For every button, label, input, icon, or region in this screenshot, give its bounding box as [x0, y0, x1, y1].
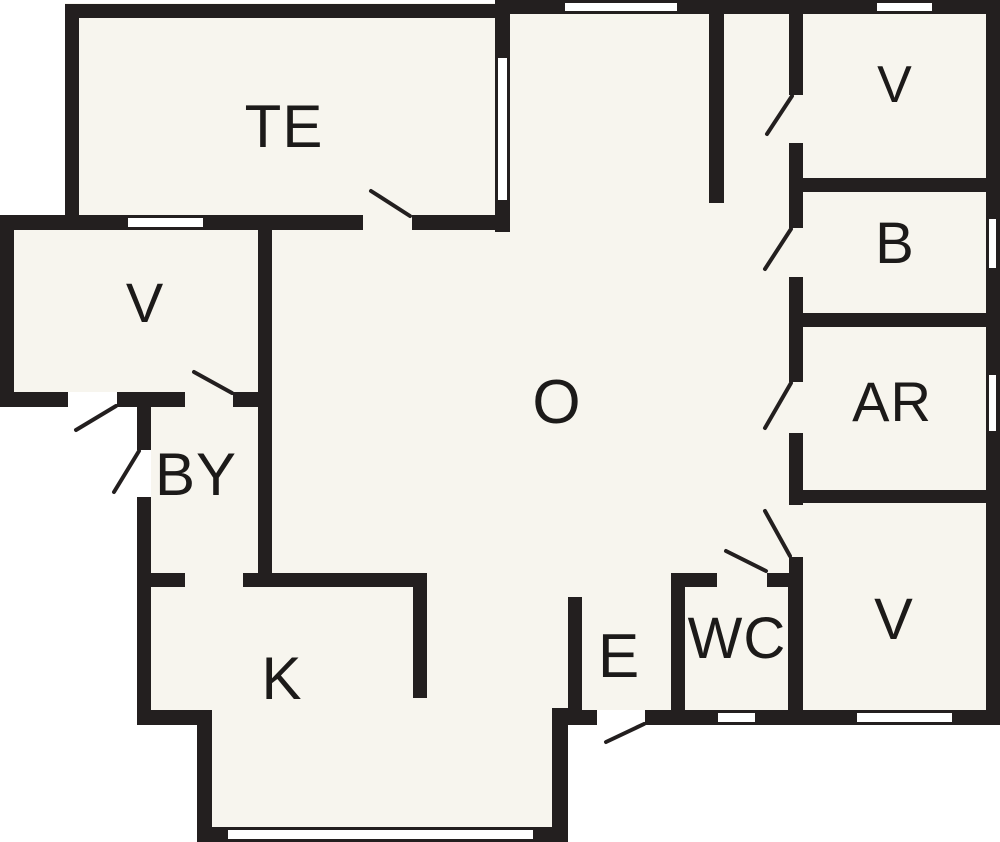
room-label-wc: WC: [688, 610, 787, 668]
door-gap-v-left-exterior: [68, 392, 117, 407]
window-b-right: [988, 218, 997, 269]
room-label-k: K: [261, 649, 302, 709]
room-label-v-left: V: [126, 275, 164, 331]
door-gap-v-by: [185, 392, 233, 407]
window-v-left: [128, 215, 203, 230]
door-gap-v-bottom-right: [789, 505, 803, 557]
wall-left-outer: [0, 215, 14, 407]
wall-k-top-right: [243, 573, 427, 587]
window-v-top-right: [877, 0, 932, 14]
room-label-ar: AR: [852, 374, 932, 430]
wall-by-left: [137, 392, 151, 725]
window-wc-bottom: [718, 710, 755, 725]
wall-right-outer: [986, 0, 1000, 725]
room-label-o: O: [532, 372, 581, 434]
door-leaf-e-exterior: [606, 724, 644, 742]
wall-o-hall-stub: [709, 14, 724, 203]
door-gap-v-top-right: [789, 95, 803, 143]
door-gap-te: [363, 215, 412, 230]
room-label-e: E: [598, 626, 640, 688]
floor-k-lower: [197, 710, 568, 842]
wall-ar-v-divider: [789, 490, 1000, 503]
wall-te-bottom: [0, 215, 510, 230]
wall-o-left-divider: [258, 215, 272, 587]
window-v-bottom-right: [857, 710, 952, 725]
wall-te-left: [65, 4, 79, 217]
wall-k-lower-left: [197, 710, 212, 842]
wall-wc-right: [788, 573, 803, 725]
floor-plan: TE V BY K O E WC V AR B V: [0, 0, 1000, 842]
wall-v-b-divider: [789, 178, 1000, 192]
door-gap-e-exterior: [597, 710, 645, 725]
room-label-by: BY: [155, 445, 237, 505]
wall-k-top-left: [151, 573, 185, 587]
door-gap-by-exterior: [137, 450, 151, 497]
door-gap-b: [789, 228, 803, 277]
wall-wc-left: [671, 573, 685, 725]
window-o-top: [565, 0, 677, 14]
wall-b-ar-divider: [789, 313, 1000, 327]
room-label-v-top-right: V: [877, 59, 913, 111]
room-label-v-bottom-right: V: [874, 591, 914, 649]
wall-k-right-stub: [413, 573, 427, 698]
door-gap-wc: [717, 573, 767, 587]
window-k-bottom: [228, 827, 533, 842]
wall-te-top: [65, 4, 510, 18]
window-ar-right: [988, 374, 997, 432]
door-gap-ar: [789, 382, 803, 433]
room-label-te: TE: [245, 97, 324, 157]
window-te-right: [495, 58, 510, 200]
room-label-b: B: [875, 215, 915, 273]
floor-plan-drawing: [0, 0, 1000, 842]
wall-e-stub: [568, 597, 582, 710]
door-leaf-by-exterior: [114, 451, 139, 492]
door-leaf-v-left-exterior: [76, 406, 116, 430]
wall-k-lower-right: [552, 708, 568, 842]
